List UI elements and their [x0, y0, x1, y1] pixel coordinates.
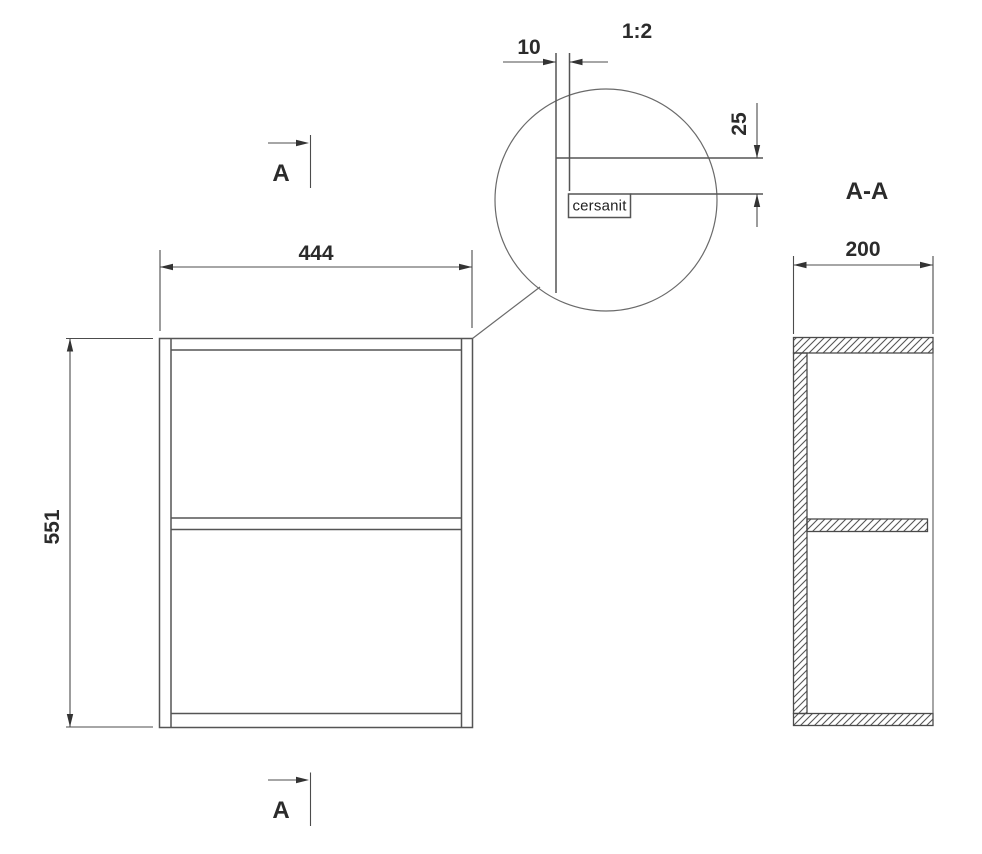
- arrowhead: [754, 145, 760, 158]
- arrowhead: [794, 262, 807, 268]
- cabinet-drawing-canvas: 444 551 A A 1:2: [0, 0, 982, 854]
- arrowhead: [67, 339, 73, 352]
- arrowhead: [296, 140, 309, 146]
- detail-leader-line: [473, 287, 541, 339]
- depth-dimension-label: 200: [845, 238, 880, 261]
- arrowhead: [67, 714, 73, 727]
- arrowhead: [459, 264, 472, 270]
- height-dimension-label: 551: [41, 509, 64, 544]
- arrowhead: [160, 264, 173, 270]
- cabinet-outline: [160, 339, 473, 728]
- front-view: [160, 339, 473, 728]
- section-marker-bottom: A: [268, 773, 311, 827]
- section-view: A-A 200: [794, 178, 934, 726]
- dim-width: 444: [160, 242, 472, 331]
- width-dimension-label: 444: [298, 242, 333, 265]
- section-top-panel: [794, 338, 934, 354]
- logo-offset-label: 25: [728, 112, 751, 136]
- section-letter-top: A: [272, 160, 289, 187]
- section-back-panel: [794, 353, 808, 714]
- dim-depth: 200: [794, 238, 934, 334]
- brand-logo: cersanit: [569, 194, 631, 218]
- logo-text: cersanit: [572, 198, 627, 215]
- section-letter-bottom: A: [272, 797, 289, 824]
- dim-height: 551: [41, 339, 153, 728]
- detail-view: 1:2 10 25 cersanit: [473, 20, 764, 339]
- section-marker-top: A: [268, 135, 311, 188]
- arrowhead: [754, 194, 760, 207]
- dim-logo-offset: 25: [728, 103, 760, 227]
- edge-offset-label: 10: [517, 36, 540, 59]
- technical-drawing-page: 444 551 A A 1:2: [0, 0, 982, 854]
- arrowhead: [570, 59, 583, 65]
- section-view-title: A-A: [846, 178, 889, 205]
- arrowhead: [296, 777, 309, 783]
- section-bottom-panel: [794, 714, 934, 726]
- arrowhead: [543, 59, 556, 65]
- arrowhead: [920, 262, 933, 268]
- detail-scale-label: 1:2: [622, 20, 652, 43]
- section-shelf: [807, 519, 928, 532]
